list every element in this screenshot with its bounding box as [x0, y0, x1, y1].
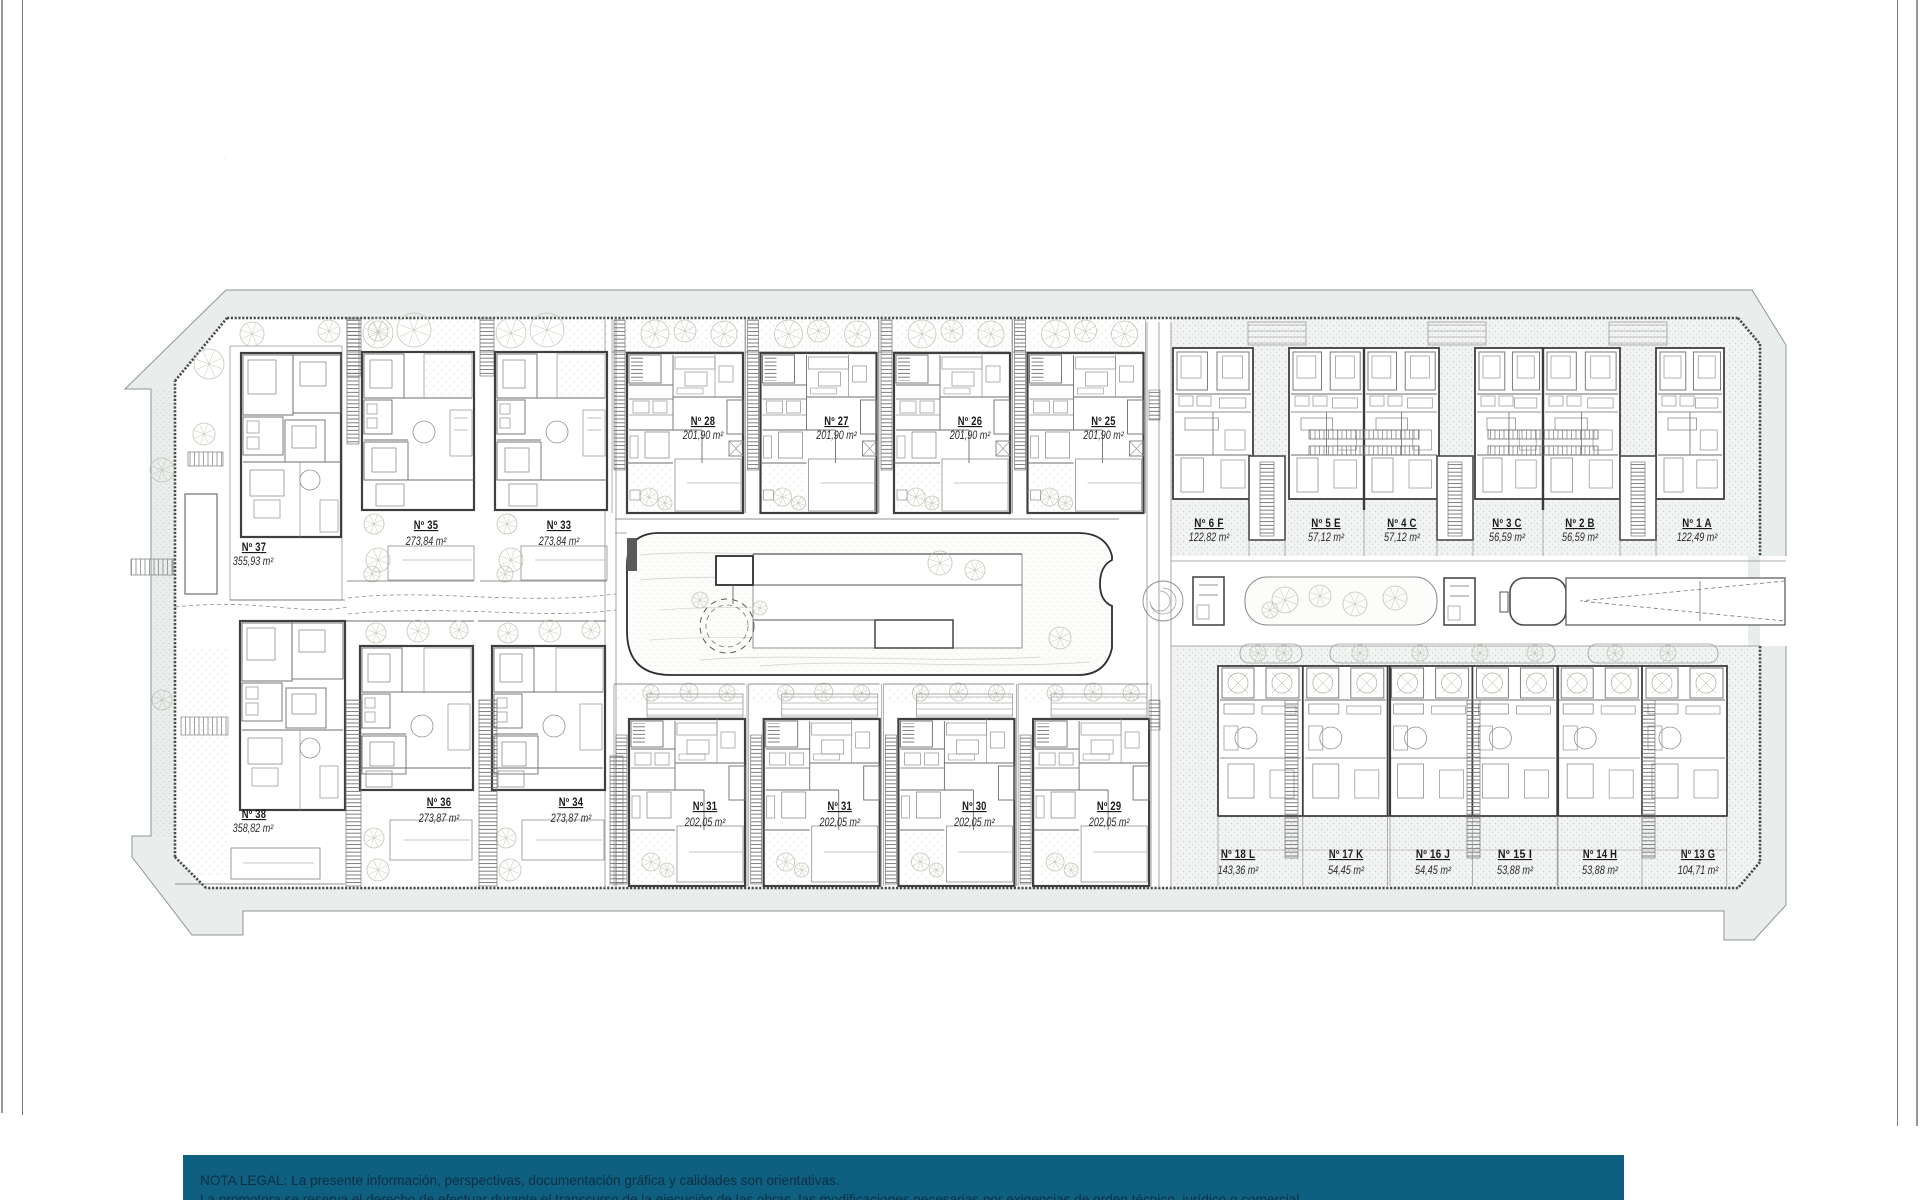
svg-text:Nº 18 L: Nº 18 L — [1221, 849, 1255, 861]
svg-text:Nº 1 A: Nº 1 A — [1682, 518, 1711, 530]
svg-text:122,49 m²: 122,49 m² — [1677, 532, 1718, 544]
svg-text:Nº 33: Nº 33 — [547, 520, 572, 532]
svg-text:Nº 28: Nº 28 — [691, 416, 716, 428]
svg-text:201,90 m²: 201,90 m² — [682, 430, 724, 442]
svg-text:Nº 15 I: Nº 15 I — [1498, 849, 1532, 861]
svg-text:54,45 m²: 54,45 m² — [1328, 865, 1365, 877]
svg-text:201,90 m²: 201,90 m² — [949, 430, 991, 442]
svg-text:Nº 27: Nº 27 — [824, 416, 849, 428]
svg-text:273,84 m²: 273,84 m² — [405, 536, 447, 548]
svg-text:Nº 5 E: Nº 5 E — [1311, 518, 1340, 530]
svg-text:201,90 m²: 201,90 m² — [815, 430, 857, 442]
svg-text:202,05 m²: 202,05 m² — [819, 817, 861, 829]
svg-text:Nº 35: Nº 35 — [414, 520, 439, 532]
svg-text:NOTA LEGAL: La presente inform: NOTA LEGAL: La presente información, per… — [200, 1173, 840, 1188]
svg-text:273,84 m²: 273,84 m² — [538, 536, 580, 548]
svg-text:54,45 m²: 54,45 m² — [1415, 865, 1452, 877]
svg-text:Nº 4 C: Nº 4 C — [1387, 518, 1416, 530]
svg-text:La promotora se reserva el der: La promotora se reserva el derecho de ef… — [200, 1192, 1303, 1200]
svg-text:57,12 m²: 57,12 m² — [1308, 532, 1345, 544]
svg-text:Nº 14 H: Nº 14 H — [1583, 849, 1617, 861]
svg-text:Nº 30: Nº 30 — [962, 801, 987, 813]
svg-text:56,59 m²: 56,59 m² — [1489, 532, 1526, 544]
svg-text:Nº 26: Nº 26 — [958, 416, 983, 428]
svg-text:355,93 m²: 355,93 m² — [233, 556, 274, 568]
svg-text:201,90 m²: 201,90 m² — [1082, 430, 1124, 442]
svg-text:Nº 13 G: Nº 13 G — [1681, 849, 1715, 861]
svg-text:53,88 m²: 53,88 m² — [1497, 865, 1534, 877]
svg-text:Nº 38: Nº 38 — [242, 809, 267, 821]
svg-text:358,82 m²: 358,82 m² — [233, 823, 274, 835]
svg-text:57,12 m²: 57,12 m² — [1384, 532, 1421, 544]
svg-text:104,71 m²: 104,71 m² — [1678, 865, 1719, 877]
svg-text:273,87 m²: 273,87 m² — [550, 813, 592, 825]
svg-text:143,36 m²: 143,36 m² — [1218, 865, 1259, 877]
svg-text:Nº 2 B: Nº 2 B — [1565, 518, 1594, 530]
svg-text:Nº 29: Nº 29 — [1097, 801, 1122, 813]
svg-text:Nº 17 K: Nº 17 K — [1329, 849, 1364, 861]
svg-text:Nº 25: Nº 25 — [1091, 416, 1116, 428]
svg-text:Nº 31: Nº 31 — [693, 801, 718, 813]
svg-text:Nº 31: Nº 31 — [827, 801, 852, 813]
svg-text:Nº 34: Nº 34 — [559, 797, 584, 809]
svg-text:Nº 16 J: Nº 16 J — [1416, 849, 1450, 861]
svg-text:Nº 3 C: Nº 3 C — [1492, 518, 1521, 530]
svg-text:202,05 m²: 202,05 m² — [1088, 817, 1130, 829]
svg-text:202,05 m²: 202,05 m² — [684, 817, 726, 829]
svg-text:Nº 37: Nº 37 — [242, 542, 267, 554]
svg-text:202,05 m²: 202,05 m² — [953, 817, 995, 829]
svg-text:56,59 m²: 56,59 m² — [1562, 532, 1599, 544]
svg-text:53,88 m²: 53,88 m² — [1582, 865, 1619, 877]
svg-text:Nº 6 F: Nº 6 F — [1194, 518, 1223, 530]
svg-text:122,82 m²: 122,82 m² — [1189, 532, 1230, 544]
svg-text:273,87 m²: 273,87 m² — [418, 813, 460, 825]
svg-text:Nº 36: Nº 36 — [427, 797, 452, 809]
